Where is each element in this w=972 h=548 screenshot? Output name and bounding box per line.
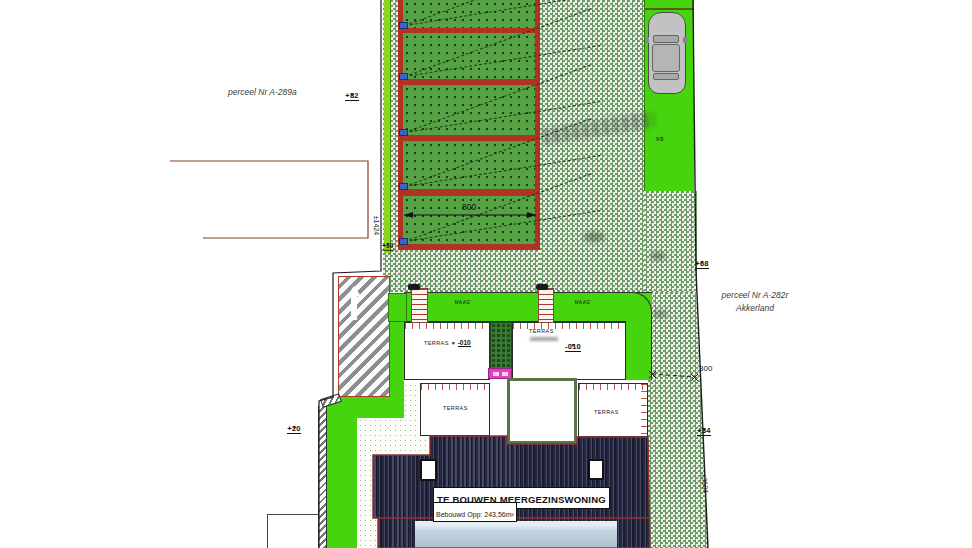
car-icon	[648, 12, 686, 94]
site-plan: VS HAAG HAAG	[0, 0, 972, 548]
plot-corner-marker	[399, 183, 408, 190]
parking-vs-label: VS	[656, 136, 664, 142]
building-area-box: Bebouwd Opp: 243,56m²	[433, 502, 517, 522]
roof-chimney-left	[420, 459, 437, 481]
stairs-right-landing	[536, 284, 548, 290]
garden-plot	[403, 141, 535, 189]
elevation-marker-icon: ▼	[700, 260, 705, 264]
plot-corner-marker	[399, 129, 408, 136]
car-mirror-left	[645, 37, 649, 43]
groundcover-right-band	[648, 292, 708, 548]
roof-chimney-right	[588, 459, 604, 480]
outbuilding-outline	[267, 514, 322, 548]
grass-side-band	[325, 402, 357, 548]
neighbour-building-outline	[170, 161, 368, 238]
hedge-tag-dot	[493, 372, 499, 376]
terrace-upper-left-labels: TERRAS ▼ -010	[424, 339, 471, 347]
grass-strip-beside-ramp	[390, 322, 404, 398]
parking-divider-line	[644, 8, 694, 10]
terrace-level: -010	[458, 339, 471, 347]
stairs-left	[411, 288, 428, 323]
shrub-smudge	[583, 232, 605, 242]
terrace-upper-left	[404, 322, 490, 380]
elevation-marker-icon: ▼	[702, 427, 707, 431]
roof-lower-deck	[415, 521, 617, 548]
elevation-marker-icon: ▼	[386, 243, 390, 246]
parcel-right-name: perceel Nr A-282r	[700, 290, 810, 300]
party-wall-hatch	[318, 406, 327, 548]
verge-strip	[384, 0, 391, 253]
parcel-label-left: perceel Nr A-289a	[228, 87, 297, 97]
groundcover-upper-middle	[540, 0, 644, 292]
parcel-label-right: perceel Nr A-282r Akkerland	[700, 290, 810, 313]
garden-plot	[403, 33, 535, 79]
garden-square	[388, 293, 407, 322]
terrace-edge-ticks-vertical	[641, 384, 647, 436]
hedge-tag-dot	[502, 372, 508, 376]
dim-left-boundary: ±1424	[373, 206, 380, 246]
level-marker-icon: ▼	[571, 343, 576, 347]
car-mirror-right	[683, 37, 687, 43]
offset-300-label: 300	[699, 364, 712, 373]
elevation-marker-icon: ▼	[292, 425, 297, 429]
terrace-upper-right-label: TERRAS	[529, 328, 554, 334]
car-roof	[652, 44, 680, 72]
terrace-label: TERRAS	[424, 340, 449, 346]
haag-band-vertical	[626, 292, 652, 380]
building-area: Bebouwd Opp: 243,56m²	[436, 511, 514, 518]
plot-corner-marker	[399, 73, 408, 80]
garden-plot	[403, 196, 535, 244]
terrace-lower-right-label: TERRAS	[594, 409, 619, 415]
garden-plot	[403, 0, 535, 28]
haag-label-left: HAAG	[455, 300, 471, 305]
car-rear-window	[653, 73, 679, 80]
parcel-right-type: Akkerland	[700, 303, 810, 313]
stairs-right	[538, 288, 554, 323]
haag-label-right: HAAG	[575, 300, 591, 305]
shrub-smudge	[650, 252, 666, 260]
courtyard-square	[507, 378, 577, 444]
plot-corner-marker	[399, 22, 408, 29]
plot-corner-marker	[399, 238, 408, 245]
groundcover-below-parking	[644, 191, 697, 292]
terrace-edge-ticks	[421, 384, 489, 390]
garden-plot	[403, 85, 535, 135]
driveway-ramp	[338, 276, 390, 397]
shrub-smudge	[652, 310, 668, 318]
stairs-left-landing	[408, 284, 420, 290]
elevation-marker-icon: ▼	[350, 92, 355, 96]
terrace-edge-ticks	[405, 323, 489, 329]
garden-plots-block	[398, 0, 540, 250]
terrace-edge-ticks	[579, 384, 647, 390]
car-windshield	[653, 35, 679, 43]
haag-band-horizontal	[404, 292, 652, 322]
terrace-upper-right-sublabel-smudge	[530, 337, 558, 341]
level-marker-icon: ▼	[451, 340, 456, 346]
terrace-lower-left-label: TERRAS	[443, 405, 468, 411]
